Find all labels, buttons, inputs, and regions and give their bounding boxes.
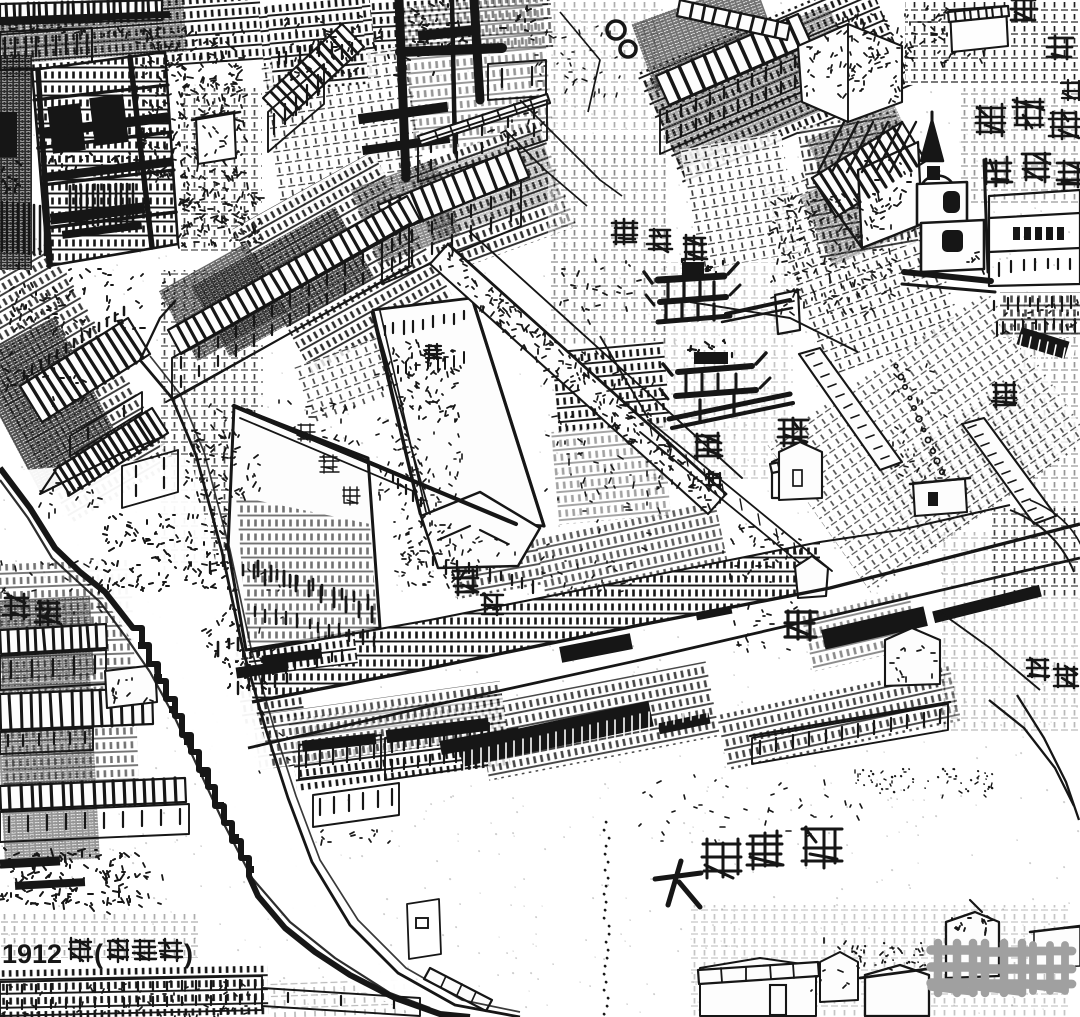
svg-text:1912: 1912 [2,939,62,969]
svg-text:(: ( [94,939,103,969]
svg-text:): ) [184,939,193,969]
